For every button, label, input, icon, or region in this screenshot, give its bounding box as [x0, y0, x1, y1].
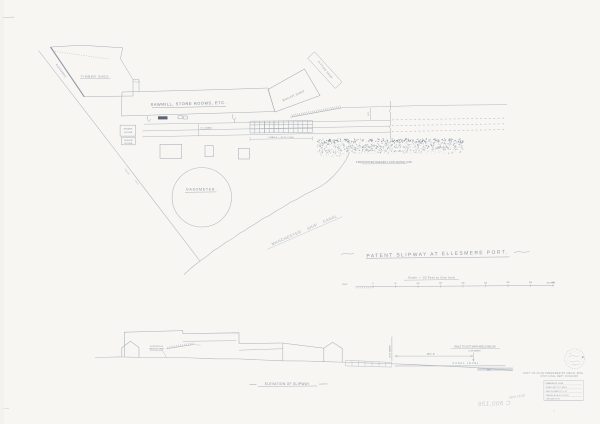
svg-text:TIMBER SHED: TIMBER SHED — [81, 75, 109, 79]
svg-text:BED: BED — [487, 369, 492, 371]
svg-text:GASOMETER: GASOMETER — [186, 188, 215, 192]
svg-text:SIZE OF SHEET 17"x 13": SIZE OF SHEET 17"x 13" — [546, 391, 568, 393]
svg-text:HIGH WATER: HIGH WATER — [388, 345, 391, 358]
svg-text:ELEVATION OF SLIPWAY.: ELEVATION OF SLIPWAY. — [265, 382, 311, 386]
svg-text:HOUSE: HOUSE — [125, 132, 133, 134]
svg-text:COPY OF PLAN PREPARED BY MECH.: COPY OF PLAN PREPARED BY MECH. ENG. — [523, 371, 584, 375]
svg-text:CRADLE — 90 FT. LONG: CRADLE — 90 FT. LONG — [268, 136, 293, 139]
svg-text:CANAL LEVEL: CANAL LEVEL — [453, 362, 480, 365]
svg-text:WINDING GEAR: WINDING GEAR — [149, 348, 165, 351]
svg-text:951,006 Ɔ: 951,006 Ɔ — [478, 400, 511, 408]
svg-text:CHECKED BY B: CHECKED BY B — [546, 399, 561, 401]
svg-text:FRESHWATER DEEPEST LOW WATER L: FRESHWATER DEEPEST LOW WATER LINE — [356, 160, 412, 164]
svg-text:FEET: FEET — [342, 284, 348, 286]
svg-text:ENGINE: ENGINE — [124, 129, 133, 131]
svg-text:BOILER: BOILER — [124, 140, 132, 142]
svg-text:Scale — 33 Feet to One Inch: Scale — 33 Feet to One Inch — [408, 275, 455, 279]
svg-text:RAILS TO SUIT SHIPS KEELS BELO: RAILS TO SUIT SHIPS KEELS BELOW — [454, 346, 496, 349]
svg-text:400 FEET: 400 FEET — [546, 282, 556, 284]
svg-text:TRACED BY A.S.T. 27.4.28: TRACED BY A.S.T. 27.4.28 — [546, 394, 569, 397]
svg-text:257'- 0": 257'- 0" — [427, 353, 435, 356]
svg-text:LOW WATER: LOW WATER — [468, 349, 481, 352]
svg-text:SCALE 33FT TO 1 INCH: SCALE 33FT TO 1 INCH — [546, 386, 568, 389]
svg-text:SHIP CANAL DEPT. RUNCORN: SHIP CANAL DEPT. RUNCORN — [541, 375, 579, 378]
svg-text:DRAWING Nº 11238: DRAWING Nº 11238 — [546, 382, 563, 385]
svg-text:HOUSE: HOUSE — [125, 143, 133, 145]
